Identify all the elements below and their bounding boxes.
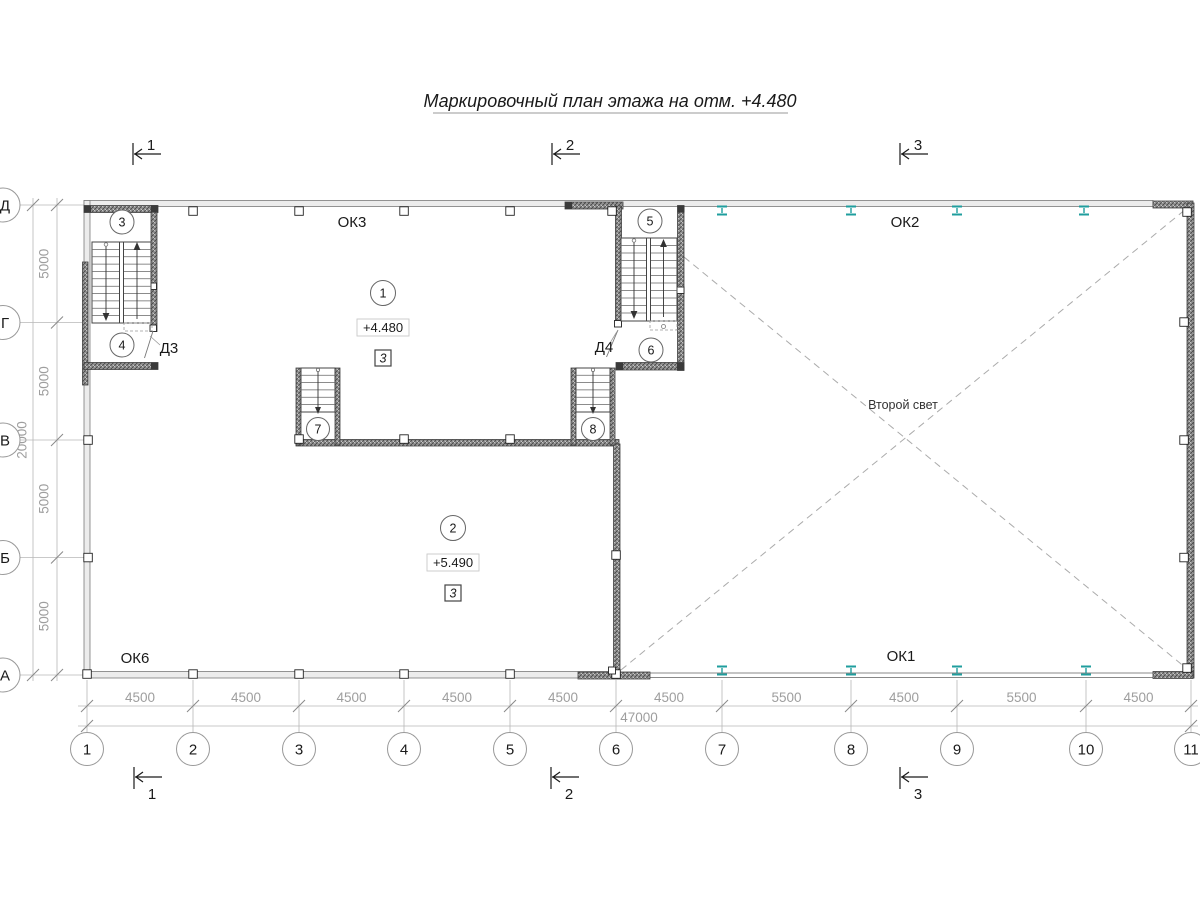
dim-total: 47000 <box>620 710 658 725</box>
drawing-title: Маркировочный план этажа на отм. +4.480 <box>423 91 796 113</box>
row-axis-g: Г <box>1 315 9 332</box>
dim-value: 4500 <box>442 690 472 705</box>
window-label-ok1: ОК1 <box>887 648 916 665</box>
dim-value: 5000 <box>37 249 52 279</box>
dim-value: 4500 <box>889 690 919 705</box>
room-circle-4: 4 <box>119 338 126 352</box>
row-axis-a: А <box>0 667 10 684</box>
section-marker-2-bottom: 2 <box>551 767 579 803</box>
section-number: 1 <box>148 786 156 803</box>
column-axis-11: 11 <box>1183 741 1199 758</box>
column-axis-bubbles: 1 2 3 4 5 6 7 8 9 10 11 <box>71 733 1200 766</box>
section-number: 2 <box>565 786 573 803</box>
dim-value: 5000 <box>37 484 52 514</box>
room-circle-6: 6 <box>648 343 655 357</box>
elevation-label-2: +5.490 <box>433 555 473 570</box>
section-marker-3-bottom: 3 <box>900 767 928 803</box>
room-circle-3: 3 <box>119 215 126 229</box>
dimension-lines <box>20 198 1198 732</box>
room-circle-5: 5 <box>647 214 654 228</box>
column-axis-9: 9 <box>953 741 961 758</box>
type-mark-2: 3 <box>450 586 457 600</box>
type-mark-1: 3 <box>380 351 387 365</box>
section-marker-1-top: 1 <box>133 137 161 165</box>
dim-value: 5000 <box>37 366 52 396</box>
dim-value: 5500 <box>1006 690 1036 705</box>
row-axis-v: В <box>0 432 10 449</box>
column-axis-3: 3 <box>295 741 303 758</box>
row-axis-bubbles: Д Г В Б А <box>0 188 20 692</box>
dim-value: 5000 <box>37 601 52 631</box>
column-axis-2: 2 <box>189 741 197 758</box>
section-marker-1-bottom: 1 <box>134 767 162 803</box>
door-label-d3: Д3 <box>160 340 179 357</box>
dim-value: 4500 <box>1123 690 1153 705</box>
steel-column-web <box>722 208 1086 673</box>
row-axis-b: Б <box>0 550 10 567</box>
room-circle-2: 2 <box>450 521 457 535</box>
dim-value: 4500 <box>654 690 684 705</box>
room-circle-1: 1 <box>380 286 387 300</box>
wall-bottom-left <box>84 672 619 679</box>
stairwell-middle <box>565 202 685 371</box>
column-axis-6: 6 <box>612 741 620 758</box>
window-label-ok2: ОК2 <box>891 214 920 231</box>
second-light-diagonals <box>621 209 1186 670</box>
column-axis-8: 8 <box>847 741 855 758</box>
dim-value: 4500 <box>231 690 261 705</box>
column-axis-7: 7 <box>718 741 726 758</box>
elevation-label-1: +4.480 <box>363 320 403 335</box>
dim-value: 4500 <box>125 690 155 705</box>
column-dimensions: 4500 4500 4500 4500 4500 4500 5500 4500 … <box>125 690 1154 725</box>
dim-value: 5500 <box>771 690 801 705</box>
diagonal-dashed-line <box>621 209 1186 670</box>
plan-canvas: Маркировочный план этажа на отм. +4.480 … <box>0 0 1200 900</box>
column-axis-5: 5 <box>506 741 514 758</box>
section-marker-2-top: 2 <box>552 137 580 165</box>
steel-columns <box>717 207 1091 675</box>
diagonal-dashed-line <box>684 257 1186 668</box>
wall-interior-horizontal <box>296 440 619 447</box>
steel-column-icon <box>717 207 1091 675</box>
column-axis-4: 4 <box>400 741 408 758</box>
room-circle-7: 7 <box>315 422 322 436</box>
dim-value: 4500 <box>548 690 578 705</box>
column-axis-10: 10 <box>1078 741 1095 758</box>
section-number: 3 <box>914 137 922 154</box>
door-leaf-d3 <box>145 331 154 358</box>
column-axis-1: 1 <box>83 741 91 758</box>
page-title: Маркировочный план этажа на отм. +4.480 <box>423 91 796 111</box>
marking-plan-drawing: Маркировочный план этажа на отм. +4.480 … <box>0 0 1200 900</box>
section-number: 2 <box>566 137 574 154</box>
section-marker-3-top: 3 <box>900 137 928 165</box>
row-axis-d: Д <box>0 197 10 214</box>
floor-edge-bottom-right <box>619 673 1153 678</box>
second-light-note: Второй свет <box>868 398 938 412</box>
room-circle-8: 8 <box>590 422 597 436</box>
section-number: 3 <box>914 786 922 803</box>
dim-value: 4500 <box>336 690 366 705</box>
window-label-ok6: ОК6 <box>121 650 150 667</box>
window-label-ok3: ОК3 <box>338 214 367 231</box>
section-number: 1 <box>147 137 155 154</box>
door-label-d4: Д4 <box>595 339 614 356</box>
